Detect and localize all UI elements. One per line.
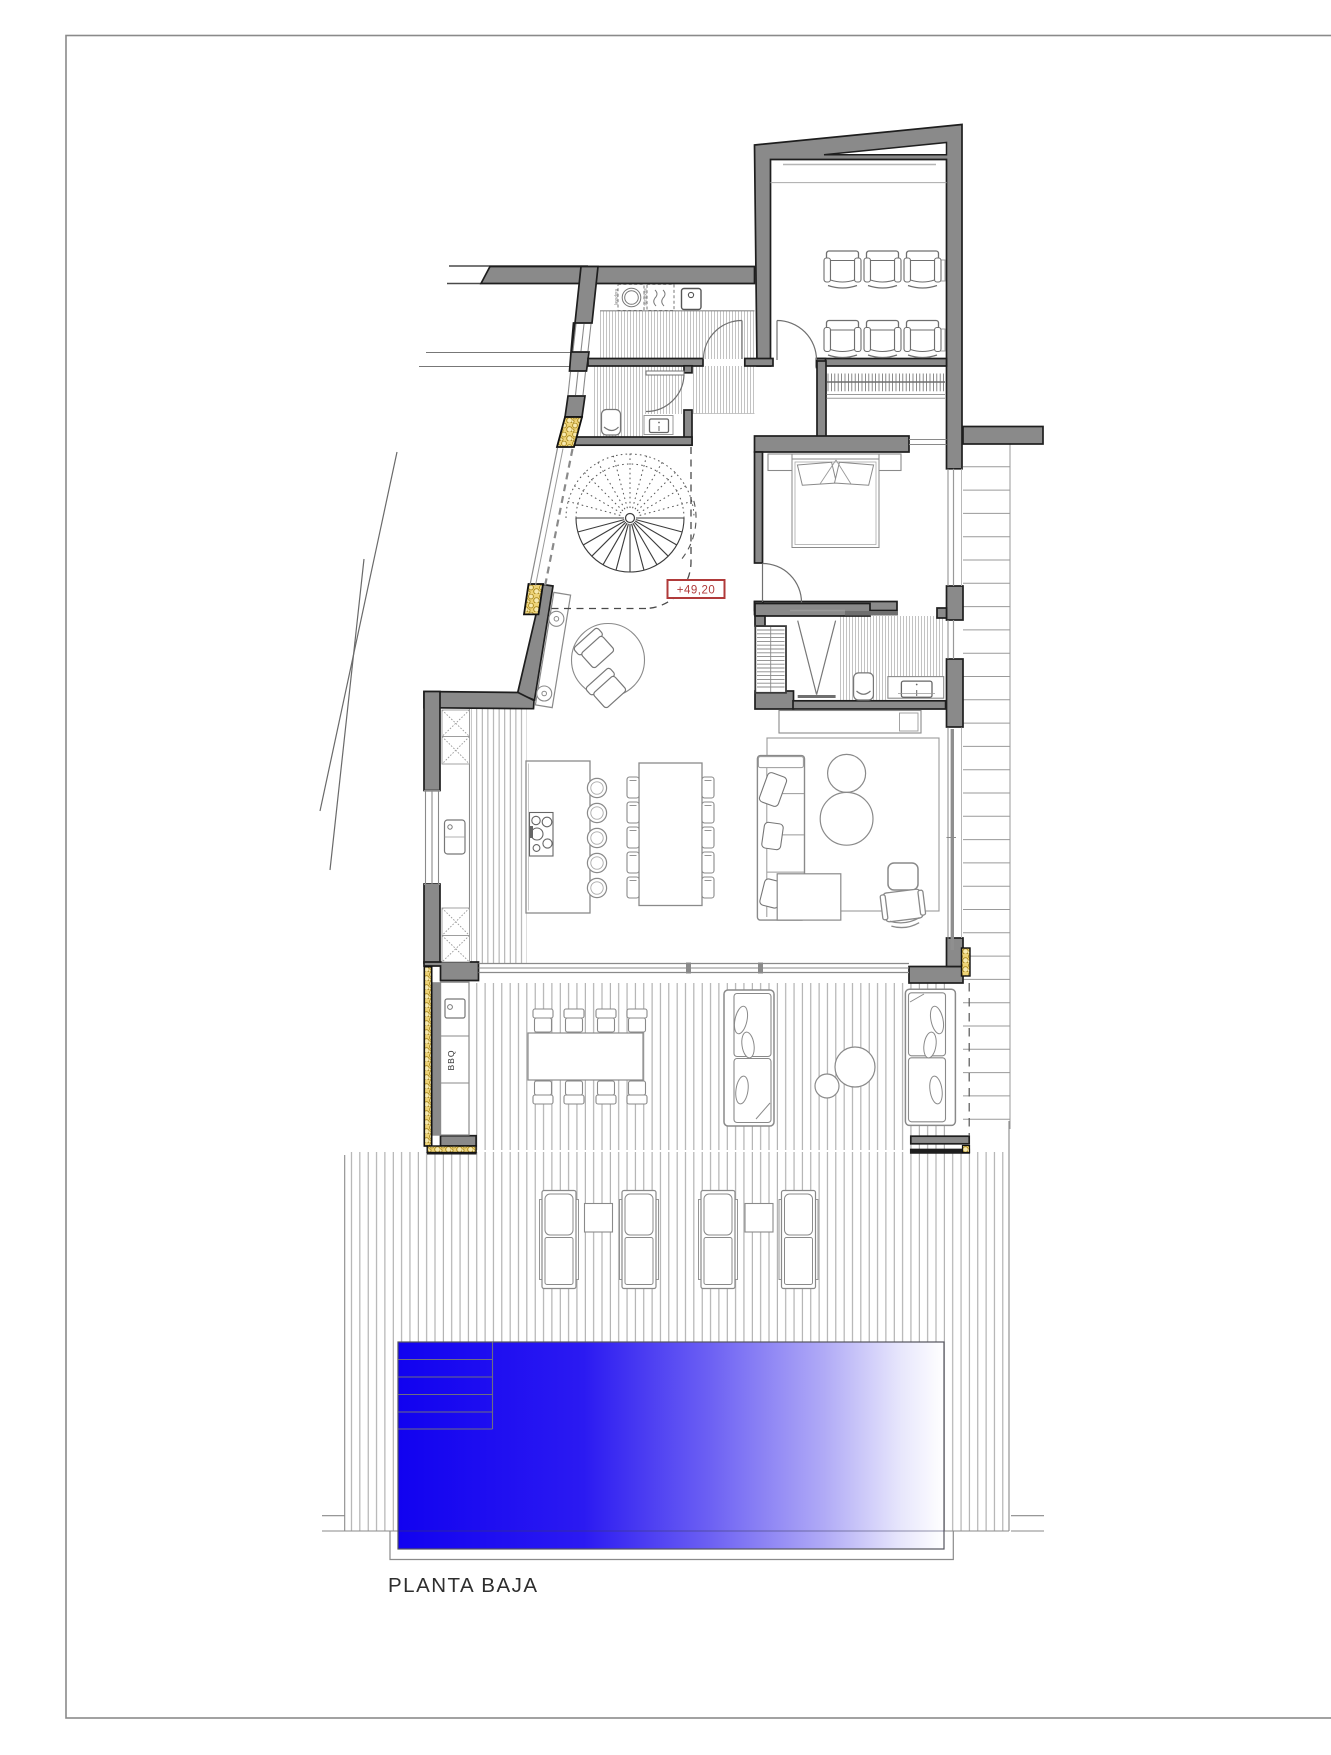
svg-text:+49,20: +49,20 (677, 585, 716, 597)
svg-text:BBQ: BBQ (446, 1050, 456, 1071)
svg-text:secadora: secadora (643, 288, 648, 306)
svg-text:lavadora: lavadora (614, 288, 619, 305)
svg-text:PLANTA BAJA: PLANTA BAJA (388, 1574, 539, 1597)
